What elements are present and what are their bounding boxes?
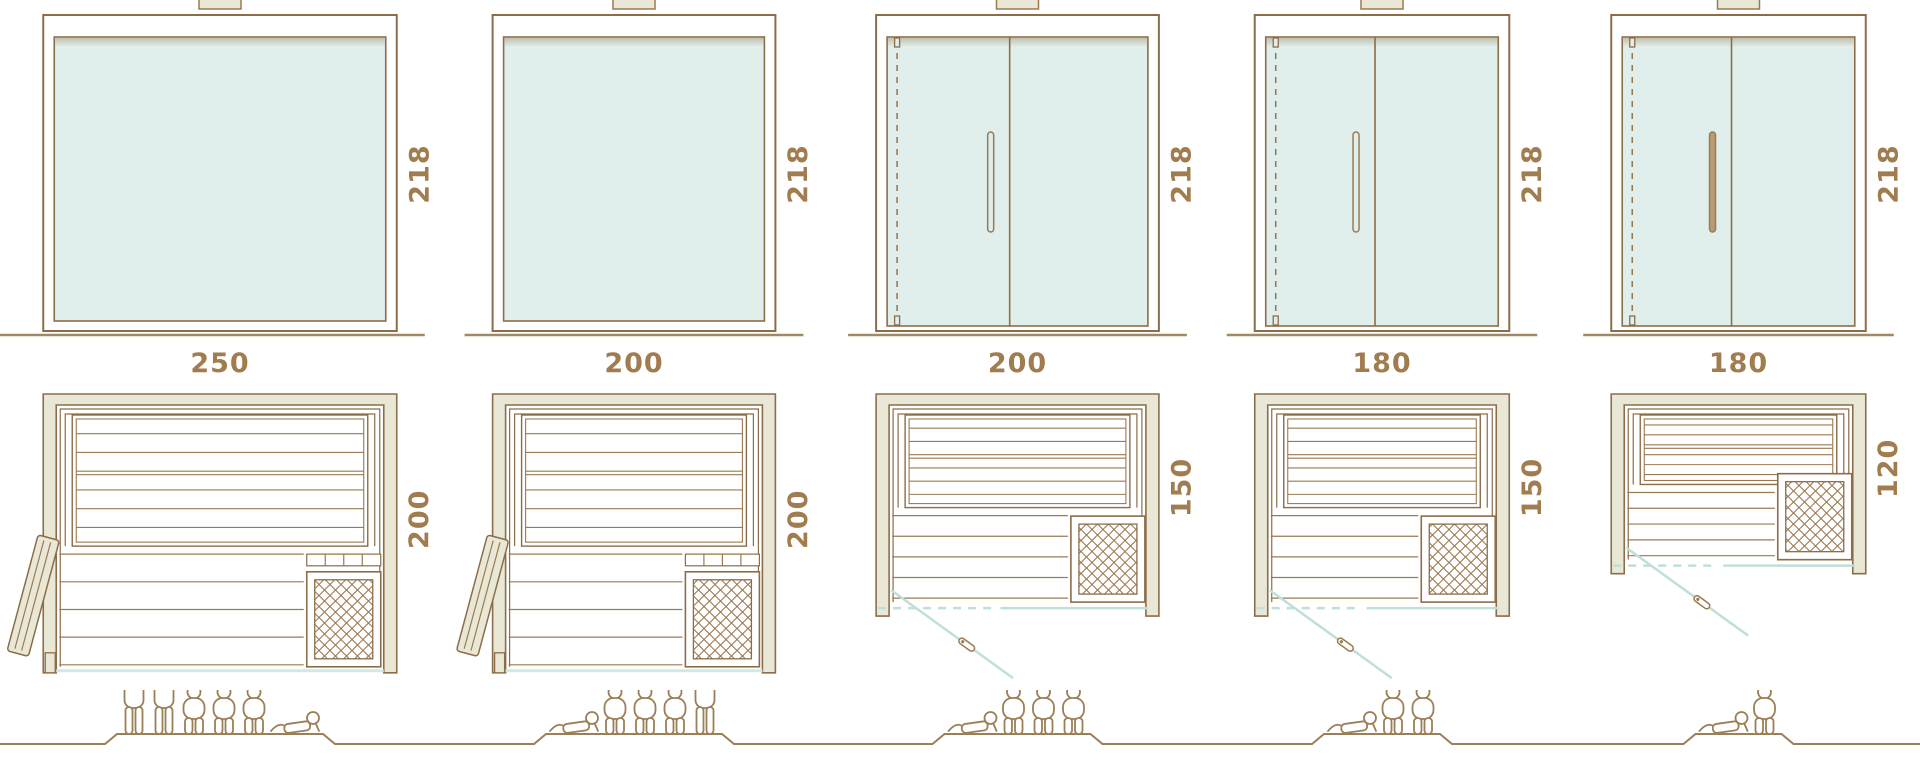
capacity-figures	[440, 690, 828, 770]
door-handle-icon	[1353, 132, 1359, 232]
front-elevation-drawing: 218	[828, 0, 1207, 346]
floor-plan-drawing: 200	[0, 392, 440, 690]
glass-top-shadow	[1623, 38, 1854, 47]
sitting-person-icon	[244, 690, 265, 734]
capacity-baseline-platform	[828, 734, 1207, 744]
lying-person-icon	[1700, 712, 1748, 733]
depth-dimension-label: 200	[783, 490, 814, 549]
floor-plan-drawing: 150	[1207, 392, 1557, 690]
top-vent-tab	[997, 0, 1039, 9]
hinge-icon	[1630, 38, 1635, 47]
bench-lower	[59, 554, 304, 665]
heater	[307, 572, 381, 667]
front-elevation-drawing: 218	[440, 0, 828, 346]
glass-top-shadow	[1267, 38, 1498, 47]
door-handle-icon	[1710, 132, 1716, 232]
vent-slats	[307, 554, 381, 566]
door-handle-icon	[958, 637, 976, 652]
capacity-baseline-platform	[0, 734, 440, 744]
front-elevation-drawing: 218	[0, 0, 440, 346]
sitting-person-icon	[1003, 690, 1024, 734]
door-handle-icon	[1336, 637, 1354, 652]
glass-panel	[504, 37, 765, 321]
height-dimension-label: 218	[404, 144, 435, 203]
bench-upper	[905, 415, 1130, 508]
lying-person-icon	[271, 712, 319, 733]
bench-lower	[1627, 492, 1775, 555]
hinge-icon	[1630, 316, 1635, 325]
capacity-baseline-platform	[1207, 734, 1557, 744]
vent-slats	[685, 554, 759, 566]
sitting-person-icon	[184, 690, 205, 734]
glass-top-shadow	[55, 38, 385, 47]
sitting-person-icon	[635, 690, 656, 734]
sauna-column-sauna-250x200: 218250200	[0, 0, 440, 770]
width-dimension-label: 200	[440, 341, 828, 387]
sauna-column-sauna-180x120: 218180120	[1557, 0, 1920, 770]
capacity-baseline-platform	[1557, 734, 1920, 744]
depth-dimension-label: 150	[1517, 458, 1548, 517]
bench-lower	[892, 516, 1068, 599]
sitting-person-icon	[1413, 690, 1434, 734]
floor-plan-drawing: 200	[440, 392, 828, 690]
sitting-person-icon	[665, 690, 686, 734]
glass-panel	[1622, 37, 1855, 326]
depth-dimension-label: 150	[1166, 458, 1197, 517]
capacity-figures	[1557, 690, 1920, 770]
glass-panel	[1266, 37, 1499, 326]
bench-upper	[72, 415, 368, 546]
door-jamb	[45, 653, 55, 673]
door-jamb	[495, 653, 505, 673]
top-vent-tab	[613, 0, 655, 9]
bench-lower	[509, 554, 683, 665]
standing-person-icon	[124, 690, 144, 734]
floor-plan-drawing: 150	[828, 392, 1207, 690]
capacity-baseline-platform	[440, 734, 828, 744]
height-dimension-label: 218	[1873, 144, 1904, 203]
sitting-person-icon	[1383, 690, 1404, 734]
floor-plan-drawing: 120	[1557, 392, 1920, 690]
depth-dimension-label: 200	[404, 490, 435, 549]
capacity-figures	[0, 690, 440, 770]
sitting-person-icon	[605, 690, 626, 734]
glass-panel	[54, 37, 386, 321]
top-vent-tab	[199, 0, 241, 9]
sauna-column-sauna-200x150: 218200150	[828, 0, 1207, 770]
standing-person-icon	[154, 690, 174, 734]
bench-upper	[1284, 415, 1481, 508]
bench-lower	[1271, 516, 1419, 599]
sitting-person-icon	[1754, 690, 1775, 734]
width-dimension-label: 180	[1207, 341, 1557, 387]
height-dimension-label: 218	[783, 144, 814, 203]
width-dimension-label: 200	[828, 341, 1207, 387]
sitting-person-icon	[1063, 690, 1084, 734]
height-dimension-label: 218	[1517, 144, 1548, 203]
sauna-column-sauna-200x200: 218200200	[440, 0, 828, 770]
heater	[1071, 516, 1145, 602]
door-handle-icon	[988, 132, 994, 232]
glass-panel	[887, 37, 1148, 326]
top-vent-tab	[1718, 0, 1760, 9]
top-vent-tab	[1361, 0, 1403, 9]
front-elevation-drawing: 218	[1557, 0, 1920, 346]
hinge-icon	[895, 316, 900, 325]
heater	[685, 572, 759, 667]
width-dimension-label: 180	[1557, 341, 1920, 387]
height-dimension-label: 218	[1166, 144, 1197, 203]
hinge-icon	[895, 38, 900, 47]
sitting-person-icon	[214, 690, 235, 734]
sauna-size-comparison-diagram: 2182502002182002002182001502181801502181…	[0, 0, 1920, 770]
depth-dimension-label: 120	[1873, 439, 1904, 498]
capacity-figures	[828, 690, 1207, 770]
standing-person-icon	[695, 690, 715, 734]
glass-top-shadow	[505, 38, 764, 47]
width-dimension-label: 250	[0, 341, 440, 387]
lying-person-icon	[550, 712, 598, 733]
lying-person-icon	[1328, 712, 1376, 733]
sitting-person-icon	[1033, 690, 1054, 734]
hinge-icon	[1273, 38, 1278, 47]
heater	[1778, 474, 1852, 560]
lying-person-icon	[949, 712, 997, 733]
door-swing-line	[1626, 548, 1748, 636]
door-handle-icon	[1693, 595, 1711, 610]
glass-top-shadow	[888, 38, 1147, 47]
door-swing-line	[891, 590, 1013, 678]
hinge-icon	[1273, 316, 1278, 325]
bench-upper	[522, 415, 747, 546]
capacity-figures	[1207, 690, 1557, 770]
front-elevation-drawing: 218	[1207, 0, 1557, 346]
sauna-column-sauna-180x150: 218180150	[1207, 0, 1557, 770]
heater	[1421, 516, 1495, 602]
door-swing-line	[1270, 590, 1392, 678]
